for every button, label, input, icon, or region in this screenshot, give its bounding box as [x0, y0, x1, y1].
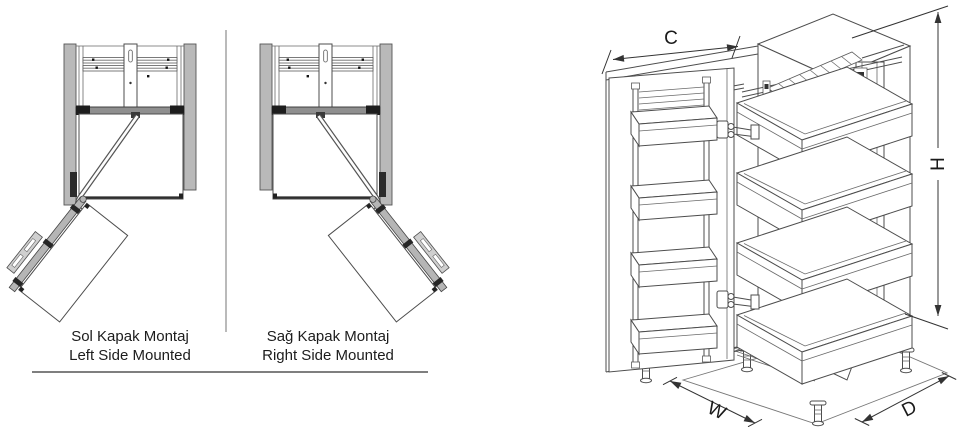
door-basket-1 [631, 106, 717, 146]
dimension-c-label: C [664, 28, 678, 49]
dimension-h-label: H [928, 157, 949, 171]
door-basket-4 [631, 314, 717, 354]
technical-drawing-page: C H W D Sol Kapak Montaj Left Side Mount… [0, 0, 960, 427]
caption-right-mount-english: Right Side Mounted [218, 346, 438, 365]
left-mount-diagram [0, 44, 196, 325]
dimension-d-label: D [899, 397, 921, 422]
door-basket-3 [631, 247, 717, 287]
right-mount-diagram [260, 44, 458, 325]
caption-right-mount-turkish: Sağ Kapak Montaj [218, 327, 438, 346]
caption-right-mount: Sağ Kapak Montaj Right Side Mounted [218, 327, 438, 365]
dimension-c: C [602, 28, 740, 74]
isometric-unit: C H W D [602, 6, 956, 427]
caption-left-mount: Sol Kapak Montaj Left Side Mounted [20, 327, 240, 365]
caption-left-mount-turkish: Sol Kapak Montaj [20, 327, 240, 346]
door-basket-2 [631, 180, 717, 220]
caption-left-mount-english: Left Side Mounted [20, 346, 240, 365]
hinge-bottom [717, 291, 759, 309]
dimension-w-label: W [704, 398, 729, 425]
